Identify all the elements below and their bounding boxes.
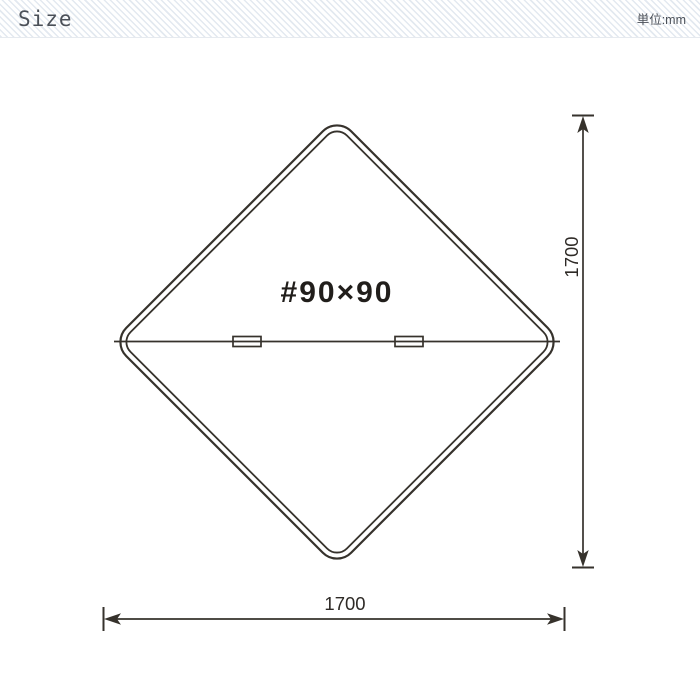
center-size-label: #90×90 — [281, 276, 394, 309]
width-dimension-label: 1700 — [324, 593, 365, 614]
dimension-diagram: #90×90 1700 1700 — [0, 0, 700, 700]
height-dimension: 1700 — [561, 116, 594, 568]
size-diagram-page: #90×90 1700 1700 Size 単位:mm — [0, 0, 700, 700]
section-title: Size — [18, 7, 73, 31]
height-dimension-label: 1700 — [561, 236, 582, 277]
size-section-header: Size 単位:mm — [0, 0, 700, 38]
unit-label: 単位:mm — [637, 9, 686, 28]
width-dimension: 1700 — [104, 593, 565, 631]
